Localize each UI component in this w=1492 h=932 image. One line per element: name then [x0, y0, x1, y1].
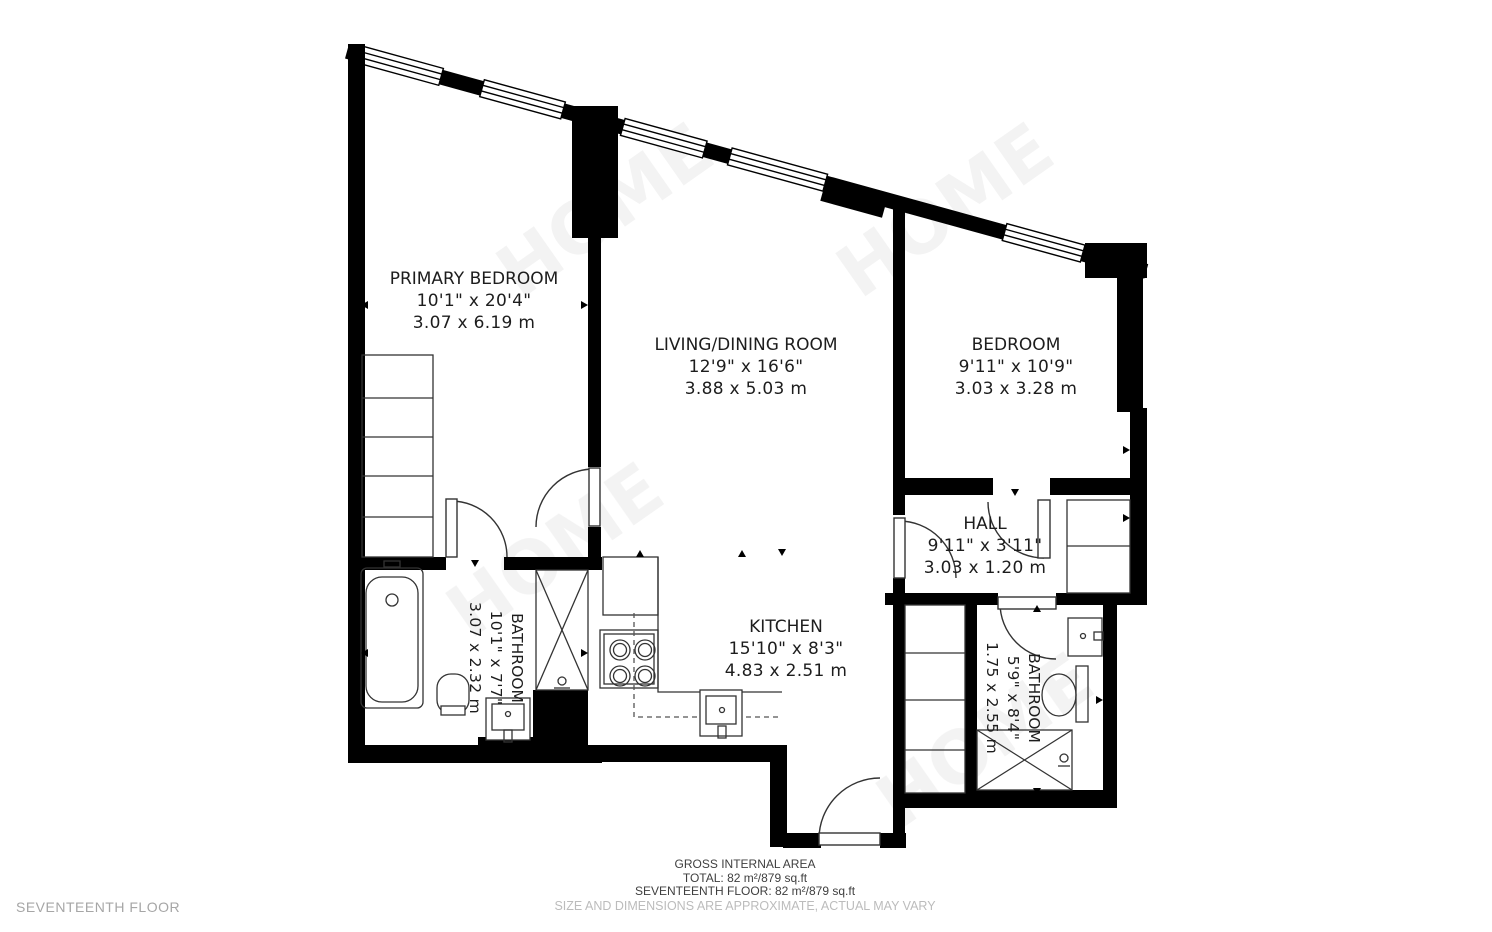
kitchen-counter-unit: [603, 557, 658, 615]
room-dim-metric: 4.83 x 2.51 m: [646, 660, 926, 682]
room-name: KITCHEN: [646, 616, 926, 638]
window-2: [480, 80, 566, 119]
room-dim-imperial: 9'11" x 3'11": [865, 535, 1105, 557]
room-dim-metric: 3.07 x 2.32 m: [464, 548, 485, 768]
room-dim-metric: 3.07 x 6.19 m: [324, 312, 624, 334]
room-name: BEDROOM: [886, 334, 1146, 356]
wardrobe-shelving: [362, 355, 433, 557]
room-dim-imperial: 10'1" x 7'7": [485, 548, 506, 768]
room-name: BATHROOM: [1023, 593, 1044, 803]
room-label-bathroom-left: BATHROOM 10'1" x 7'7" 3.07 x 2.32 m: [463, 548, 527, 768]
room-name: BATHROOM: [506, 548, 527, 768]
room-dim-imperial: 12'9" x 16'6": [586, 356, 906, 378]
floor-name-label: SEVENTEENTH FLOOR: [16, 899, 180, 915]
room-dim-imperial: 5'9" x 8'4": [1002, 593, 1023, 803]
floor-area: SEVENTEENTH FLOOR: 82 m²/879 sq.ft: [445, 885, 1045, 899]
pillar: [572, 106, 618, 238]
room-dim-metric: 3.88 x 5.03 m: [586, 378, 906, 400]
area-summary: GROSS INTERNAL AREA TOTAL: 82 m²/879 sq.…: [445, 858, 1045, 913]
room-label-bedroom: BEDROOM 9'11" x 10'9" 3.03 x 3.28 m: [886, 334, 1146, 400]
room-label-primary-bedroom: PRIMARY BEDROOM 10'1" x 20'4" 3.07 x 6.1…: [324, 268, 624, 334]
window-5: [1002, 224, 1085, 262]
room-dim-metric: 3.03 x 3.28 m: [886, 378, 1146, 400]
floorplan-drawing: HOME HOME HOME HOME: [0, 0, 1492, 932]
room-label-hall: HALL 9'11" x 3'11" 3.03 x 1.20 m: [865, 513, 1105, 579]
room-label-kitchen: KITCHEN 15'10" x 8'3" 4.83 x 2.51 m: [646, 616, 926, 682]
room-name: HALL: [865, 513, 1105, 535]
room-label-living-dining: LIVING/DINING ROOM 12'9" x 16'6" 3.88 x …: [586, 334, 906, 400]
gross-internal-area-title: GROSS INTERNAL AREA: [445, 858, 1045, 872]
room-dim-imperial: 10'1" x 20'4": [324, 290, 624, 312]
total-area: TOTAL: 82 m²/879 sq.ft: [445, 872, 1045, 886]
room-label-bathroom-right: BATHROOM 5'9" x 8'4" 1.75 x 2.55 m: [980, 593, 1044, 803]
size-disclaimer: SIZE AND DIMENSIONS ARE APPROXIMATE, ACT…: [445, 900, 1045, 914]
window-1: [359, 46, 444, 85]
room-dim-metric: 3.03 x 1.20 m: [865, 557, 1105, 579]
room-dim-imperial: 15'10" x 8'3": [646, 638, 926, 660]
room-dim-imperial: 9'11" x 10'9": [886, 356, 1146, 378]
room-dim-metric: 1.75 x 2.55 m: [981, 593, 1002, 803]
kitchen-sink: [700, 690, 742, 738]
window-4: [727, 148, 827, 191]
sink-right: [1068, 618, 1103, 656]
room-name: LIVING/DINING ROOM: [586, 334, 906, 356]
floorplan-canvas: HOME HOME HOME HOME: [0, 0, 1492, 932]
bathtub: [361, 561, 423, 708]
room-name: PRIMARY BEDROOM: [324, 268, 624, 290]
